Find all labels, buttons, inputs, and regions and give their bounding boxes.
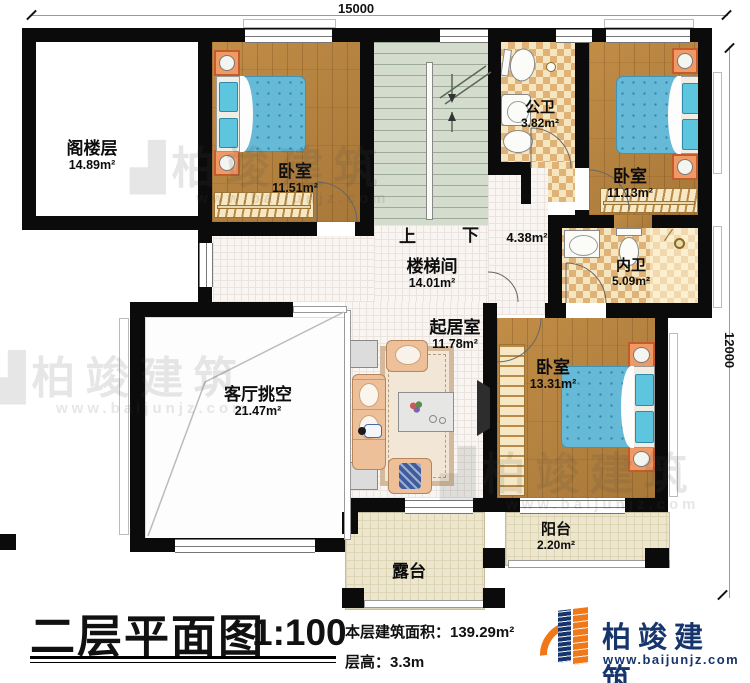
room-area: 11.78m² xyxy=(430,337,481,351)
wall xyxy=(698,28,712,318)
room-area: 21.47m² xyxy=(224,404,292,418)
room-name: 卧室 xyxy=(607,167,653,186)
floor-void xyxy=(145,317,347,540)
nightstand xyxy=(672,154,698,180)
window xyxy=(199,243,213,287)
wall xyxy=(606,303,712,318)
armchair-cushion xyxy=(395,345,421,365)
wall xyxy=(625,498,668,512)
brand-name: 柏竣建筑 xyxy=(602,614,745,683)
room-area: 2.20m² xyxy=(537,539,575,552)
room-name: 阁楼层 xyxy=(67,139,118,158)
hallway-area-label: 4.38m² xyxy=(506,231,547,246)
pillar xyxy=(483,548,505,568)
wall xyxy=(130,302,145,552)
shower-area xyxy=(650,228,698,303)
person-body xyxy=(364,424,382,438)
flower-vase xyxy=(409,401,423,413)
wall xyxy=(212,222,317,236)
room-label-bedroom-bottom-right: 卧室 13.31m² xyxy=(530,358,577,391)
sink-basin xyxy=(569,235,598,256)
blanket xyxy=(399,463,421,489)
plan-scale: 1:100 xyxy=(252,612,347,654)
balcony-slider-window xyxy=(520,500,625,514)
window xyxy=(245,29,332,43)
terrace-railing xyxy=(364,600,486,608)
room-label-stairwell: 楼梯间 14.01m² xyxy=(407,257,458,290)
room-label-bedroom-top-left: 卧室 11.51m² xyxy=(272,162,318,195)
wardrobe xyxy=(499,344,525,496)
armchair xyxy=(388,458,432,494)
window-sill xyxy=(243,19,336,28)
window-sill xyxy=(604,19,694,28)
logo-building-icon xyxy=(573,607,588,665)
room-label-private-bath: 内卫 5.09m² xyxy=(612,258,650,288)
sink xyxy=(503,130,533,153)
floor-doorway-strip xyxy=(612,215,654,229)
window xyxy=(440,29,488,43)
wall xyxy=(575,28,589,168)
terrace-door-window xyxy=(405,500,473,514)
pillar xyxy=(342,588,364,608)
room-area: 14.89m² xyxy=(67,158,118,172)
room-label-living: 起居室 11.78m² xyxy=(430,318,481,351)
room-label-void: 客厅挑空 21.47m² xyxy=(224,385,292,418)
pillow xyxy=(635,411,654,443)
room-area: 5.09m² xyxy=(612,275,650,288)
room-name: 卧室 xyxy=(530,358,577,377)
toilet xyxy=(500,44,539,86)
room-area: 11.13m² xyxy=(607,186,653,200)
wall xyxy=(22,216,212,230)
coffee-table xyxy=(398,392,454,432)
stair-up-label: 上 xyxy=(399,222,416,247)
floor-height-text: 层高：3.3m xyxy=(345,651,424,672)
wall xyxy=(22,28,36,230)
void-railing xyxy=(344,310,351,540)
floor-living-1 xyxy=(213,236,374,302)
room-area: 11.51m² xyxy=(272,181,318,195)
side-table xyxy=(350,340,378,368)
nightstand xyxy=(628,342,655,368)
toilet-tank xyxy=(616,228,642,236)
armchair xyxy=(386,340,428,372)
void-railing xyxy=(293,306,347,313)
brand-logo: 柏竣建筑 www.baijunjz.com xyxy=(540,606,745,676)
dimension-tick xyxy=(717,590,728,601)
wall xyxy=(130,302,293,317)
wall xyxy=(473,498,520,512)
wall xyxy=(355,222,374,236)
toilet-bowl xyxy=(508,47,537,83)
dimension-label-right: 12000 xyxy=(722,332,737,368)
room-name: 公卫 xyxy=(521,100,559,117)
sink-counter xyxy=(564,230,600,258)
window xyxy=(606,29,690,43)
room-name: 内卫 xyxy=(612,258,650,275)
wall xyxy=(0,534,16,550)
room-name: 卧室 xyxy=(272,162,318,181)
nightstand xyxy=(672,48,698,74)
window-sill xyxy=(669,333,678,497)
wardrobe xyxy=(214,192,314,218)
throw-pillow xyxy=(359,383,379,407)
pillar xyxy=(645,548,669,568)
floor-drain xyxy=(546,62,556,72)
bed xyxy=(616,76,702,154)
person-head xyxy=(358,427,366,435)
dimension-label-top: 15000 xyxy=(338,1,374,16)
room-name: 起居室 xyxy=(430,318,481,337)
room-label-public-bath: 公卫 3.82m² xyxy=(521,100,559,130)
pillar xyxy=(483,588,505,608)
room-name: 楼梯间 xyxy=(407,257,458,276)
shower-head xyxy=(674,238,685,249)
watermark-building-icon: ▟ xyxy=(0,351,25,403)
floor-plan-canvas: 15000 12000 xyxy=(0,0,750,683)
nightstand xyxy=(214,150,240,176)
window-sill xyxy=(713,72,722,174)
room-area: 3.82m² xyxy=(521,117,559,130)
wall xyxy=(488,28,501,168)
room-label-terrace: 露台 xyxy=(392,562,426,581)
wall xyxy=(545,303,566,318)
nightstand xyxy=(214,50,240,76)
room-name: 阳台 xyxy=(537,522,575,539)
window-sill xyxy=(119,318,129,535)
window xyxy=(556,29,592,43)
cup xyxy=(429,415,437,423)
pillow xyxy=(219,118,238,148)
dimension-line-right xyxy=(729,46,730,598)
tv-icon xyxy=(477,380,490,436)
wall xyxy=(360,28,374,236)
window-sill xyxy=(713,226,722,308)
wall xyxy=(345,498,405,512)
title-underline xyxy=(30,656,336,663)
room-name: 露台 xyxy=(392,562,426,581)
cup xyxy=(439,417,446,424)
room-name: 客厅挑空 xyxy=(224,385,292,404)
floor-area-text: 本层建筑面积：139.29m² xyxy=(345,621,514,642)
room-area: 14.01m² xyxy=(407,276,458,290)
pillow xyxy=(219,82,238,112)
floor-attic xyxy=(36,42,198,216)
bed xyxy=(216,76,306,152)
logo-building-icon xyxy=(558,609,571,663)
dimension-line-top xyxy=(30,15,728,16)
wall xyxy=(521,162,531,204)
floor-terrace xyxy=(345,512,485,610)
person-figure xyxy=(358,422,380,438)
nightstand xyxy=(628,446,655,472)
brand-url: www.baijunjz.com xyxy=(603,652,739,667)
window xyxy=(175,539,315,553)
stair-down-label: 下 xyxy=(462,221,479,246)
stair-handrail xyxy=(426,62,433,220)
room-area: 4.38m² xyxy=(506,231,547,246)
pillow xyxy=(635,374,654,406)
room-label-bedroom-top-right: 卧室 11.13m² xyxy=(607,167,653,200)
wall xyxy=(655,318,668,512)
room-label-balcony: 阳台 2.20m² xyxy=(537,522,575,552)
room-label-attic: 阁楼层 14.89m² xyxy=(67,139,118,172)
room-area: 13.31m² xyxy=(530,377,577,391)
